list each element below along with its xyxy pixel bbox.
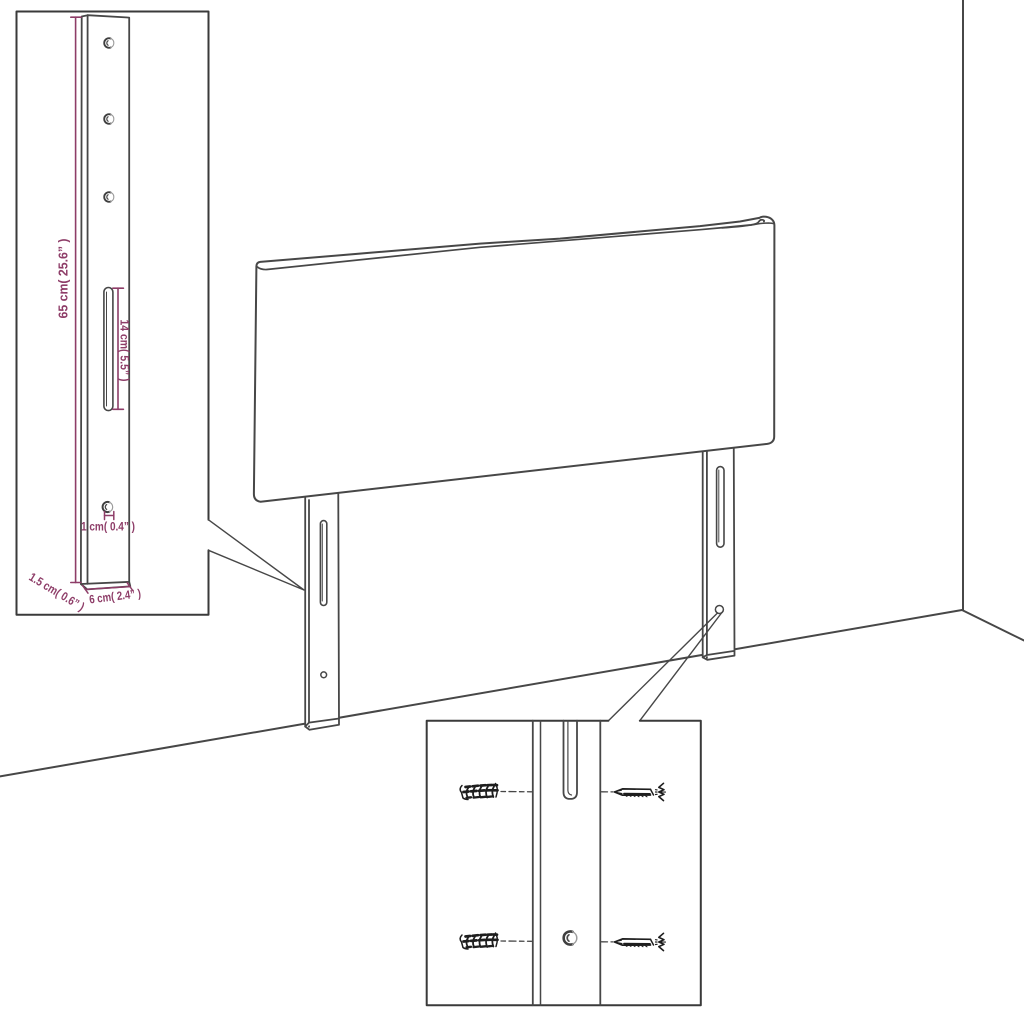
svg-text:65 cm( 25.6” ): 65 cm( 25.6” ) [56, 239, 71, 319]
svg-text:14 cm( 5.5” ): 14 cm( 5.5” ) [117, 320, 131, 382]
svg-text:1 cm( 0.4” ): 1 cm( 0.4” ) [81, 520, 135, 534]
